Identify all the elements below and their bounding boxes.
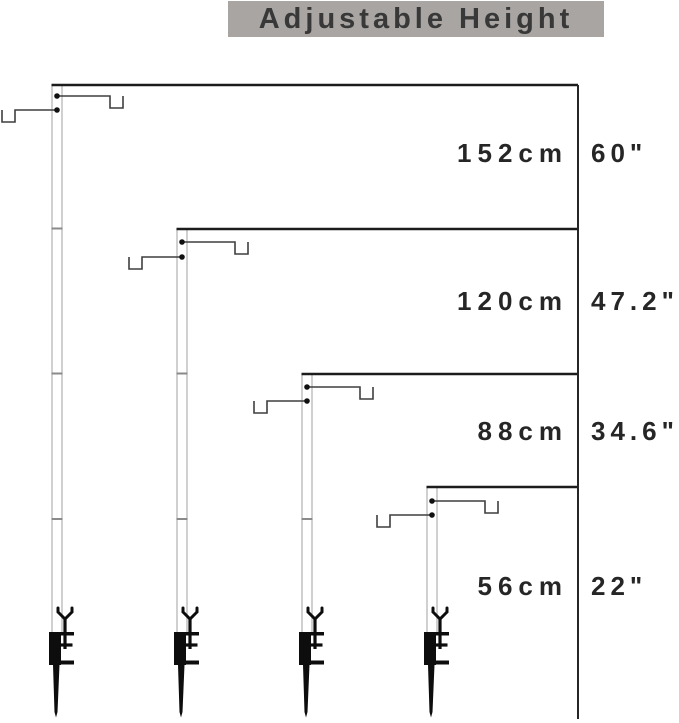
- hook-arm-right: [57, 96, 123, 108]
- hook-dot: [429, 512, 435, 518]
- hook-arm-left: [2, 110, 57, 122]
- hook-arm-right: [182, 242, 248, 254]
- hook-dot: [54, 93, 60, 99]
- ground-spike: [178, 665, 185, 718]
- clamp-arm-bottom: [436, 661, 449, 665]
- ground-spike: [303, 665, 310, 718]
- measurement-inch-22: 22": [591, 573, 647, 599]
- hook-arm-left: [377, 515, 432, 527]
- clamp-arm-top: [311, 632, 324, 636]
- clamp-body: [424, 632, 436, 665]
- clamp-thumb-handle: [433, 608, 447, 619]
- hook-dot: [179, 239, 185, 245]
- clamp-thumb-handle: [308, 608, 322, 619]
- clamp-arm-bottom: [186, 661, 199, 665]
- clamp-arm-top: [436, 632, 449, 636]
- hook-dot: [304, 398, 310, 404]
- product-diagram: Adjustable Height: [0, 0, 679, 723]
- ground-spike: [428, 665, 435, 718]
- measurement-cm-88: 88cm: [420, 418, 568, 444]
- clamp-thumb-handle: [183, 608, 197, 619]
- measurement-inch-47-2: 47.2": [591, 288, 679, 314]
- measurement-cm-56: 56cm: [420, 573, 568, 599]
- clamp-arm-bottom: [311, 661, 324, 665]
- hook-dot: [179, 254, 185, 260]
- measurement-inch-60: 60": [591, 140, 647, 166]
- clamp-thumb-handle: [58, 608, 72, 619]
- clamp-body: [174, 632, 186, 665]
- hook-dot: [429, 498, 435, 504]
- clamp-arm-top: [61, 632, 74, 636]
- pole-group-56cm: [377, 487, 578, 718]
- hook-arm-right: [432, 501, 498, 513]
- hook-dot: [304, 384, 310, 390]
- diagram-svg: [0, 0, 679, 723]
- measurement-inch-34-6: 34.6": [591, 418, 679, 444]
- ground-spike: [53, 665, 60, 718]
- hook-arm-left: [129, 257, 182, 269]
- hook-dot: [54, 107, 60, 113]
- clamp-body: [49, 632, 61, 665]
- hook-arm-right: [307, 387, 373, 399]
- measurement-cm-120: 120cm: [420, 288, 568, 314]
- clamp-arm-bottom: [61, 661, 74, 665]
- clamp-arm-top: [186, 632, 199, 636]
- clamp-body: [299, 632, 311, 665]
- measurement-cm-152: 152cm: [420, 140, 568, 166]
- hook-arm-left: [254, 401, 307, 413]
